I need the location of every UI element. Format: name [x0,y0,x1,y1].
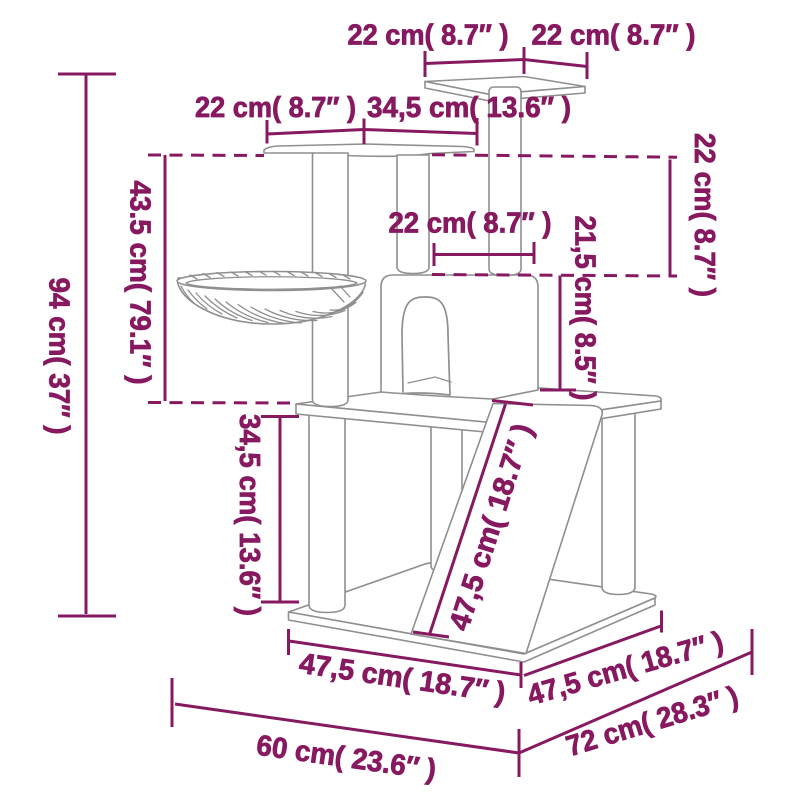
svg-text:21,5 cm( 8.5″ ): 21,5 cm( 8.5″ ) [569,216,601,401]
svg-text:22 cm( 8.7″ ): 22 cm( 8.7″ ) [389,208,552,240]
svg-text:34,5 cm( 13.6″ ): 34,5 cm( 13.6″ ) [367,92,571,124]
svg-text:22 cm( 8.7″ ): 22 cm( 8.7″ ) [348,20,509,52]
svg-text:22 cm( 8.7″ ): 22 cm( 8.7″ ) [688,133,720,297]
svg-text:22 cm( 8.7″ ): 22 cm( 8.7″ ) [532,20,696,52]
svg-text:43.5 cm( 79.1″ ): 43.5 cm( 79.1″ ) [124,181,156,385]
svg-text:34,5 cm( 13.6″ ): 34,5 cm( 13.6″ ) [233,414,265,616]
svg-text:22 cm( 8.7″ ): 22 cm( 8.7″ ) [195,92,356,124]
svg-text:94 cm( 37″ ): 94 cm( 37″ ) [43,278,75,435]
